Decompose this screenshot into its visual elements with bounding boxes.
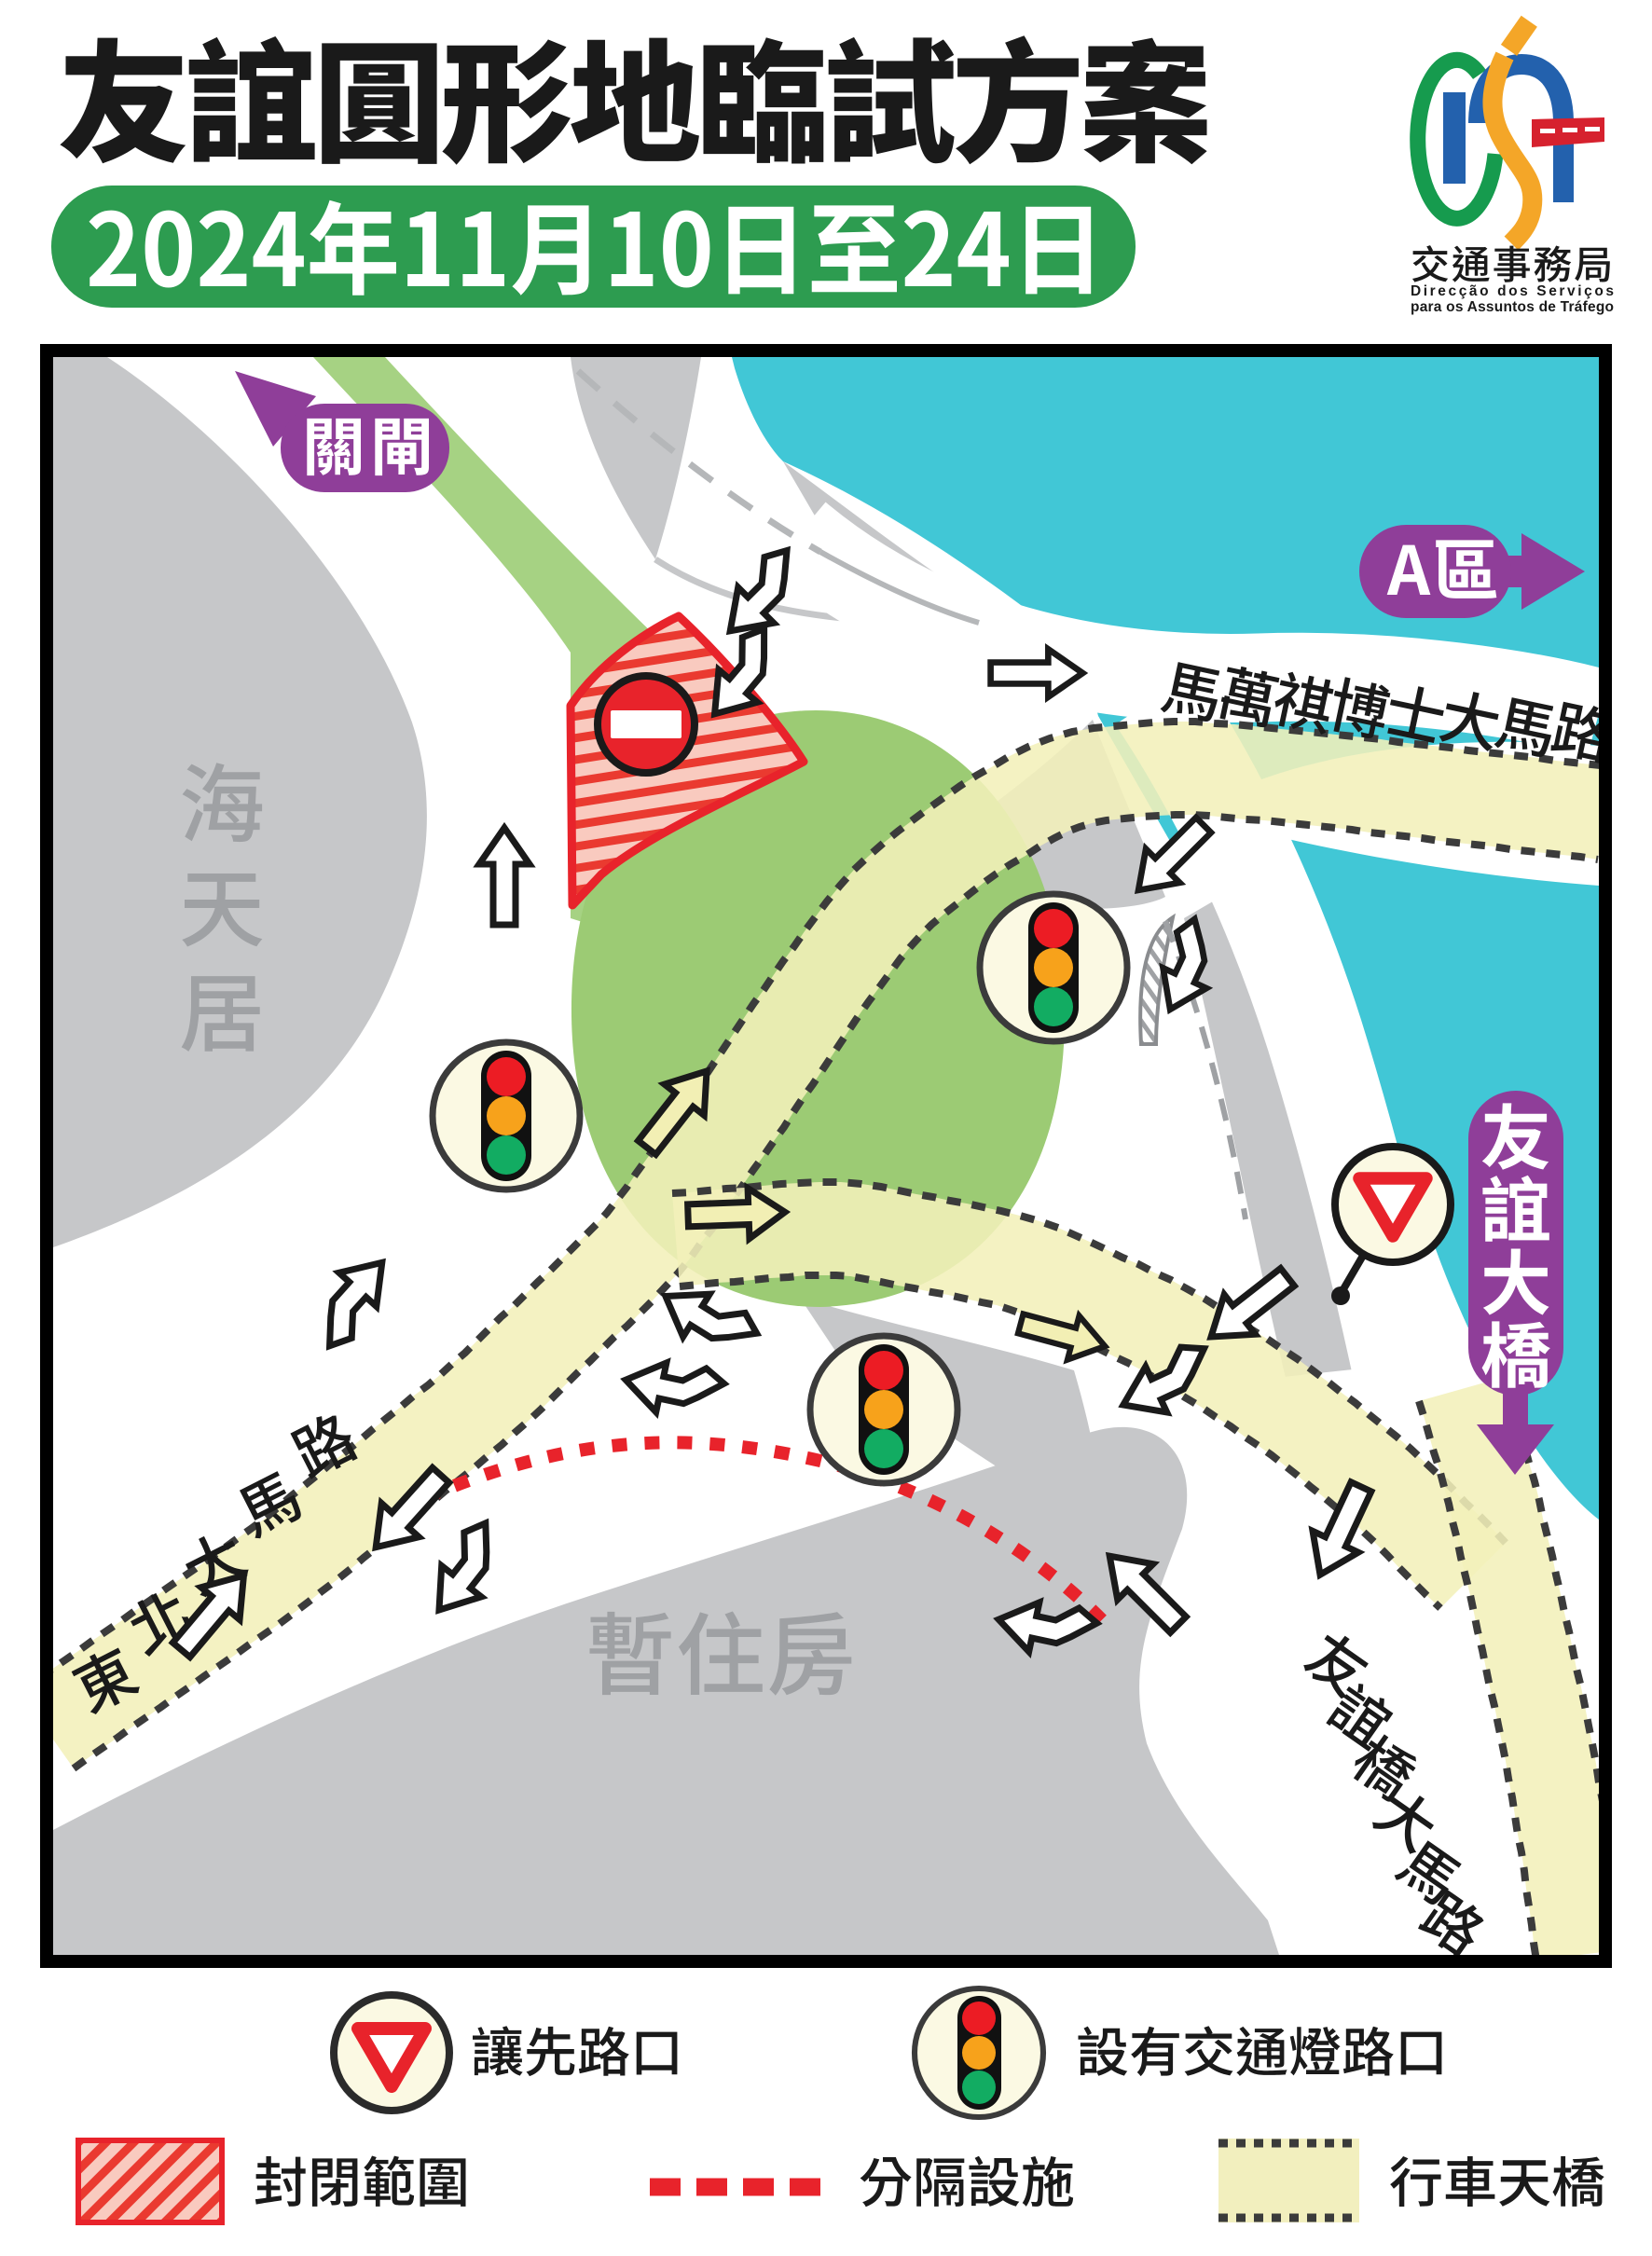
svg-text:para os Assuntos de Tráfego: para os Assuntos de Tráfego [1411, 299, 1614, 315]
svg-text:Direcção dos Serviços: Direcção dos Serviços [1411, 283, 1614, 299]
